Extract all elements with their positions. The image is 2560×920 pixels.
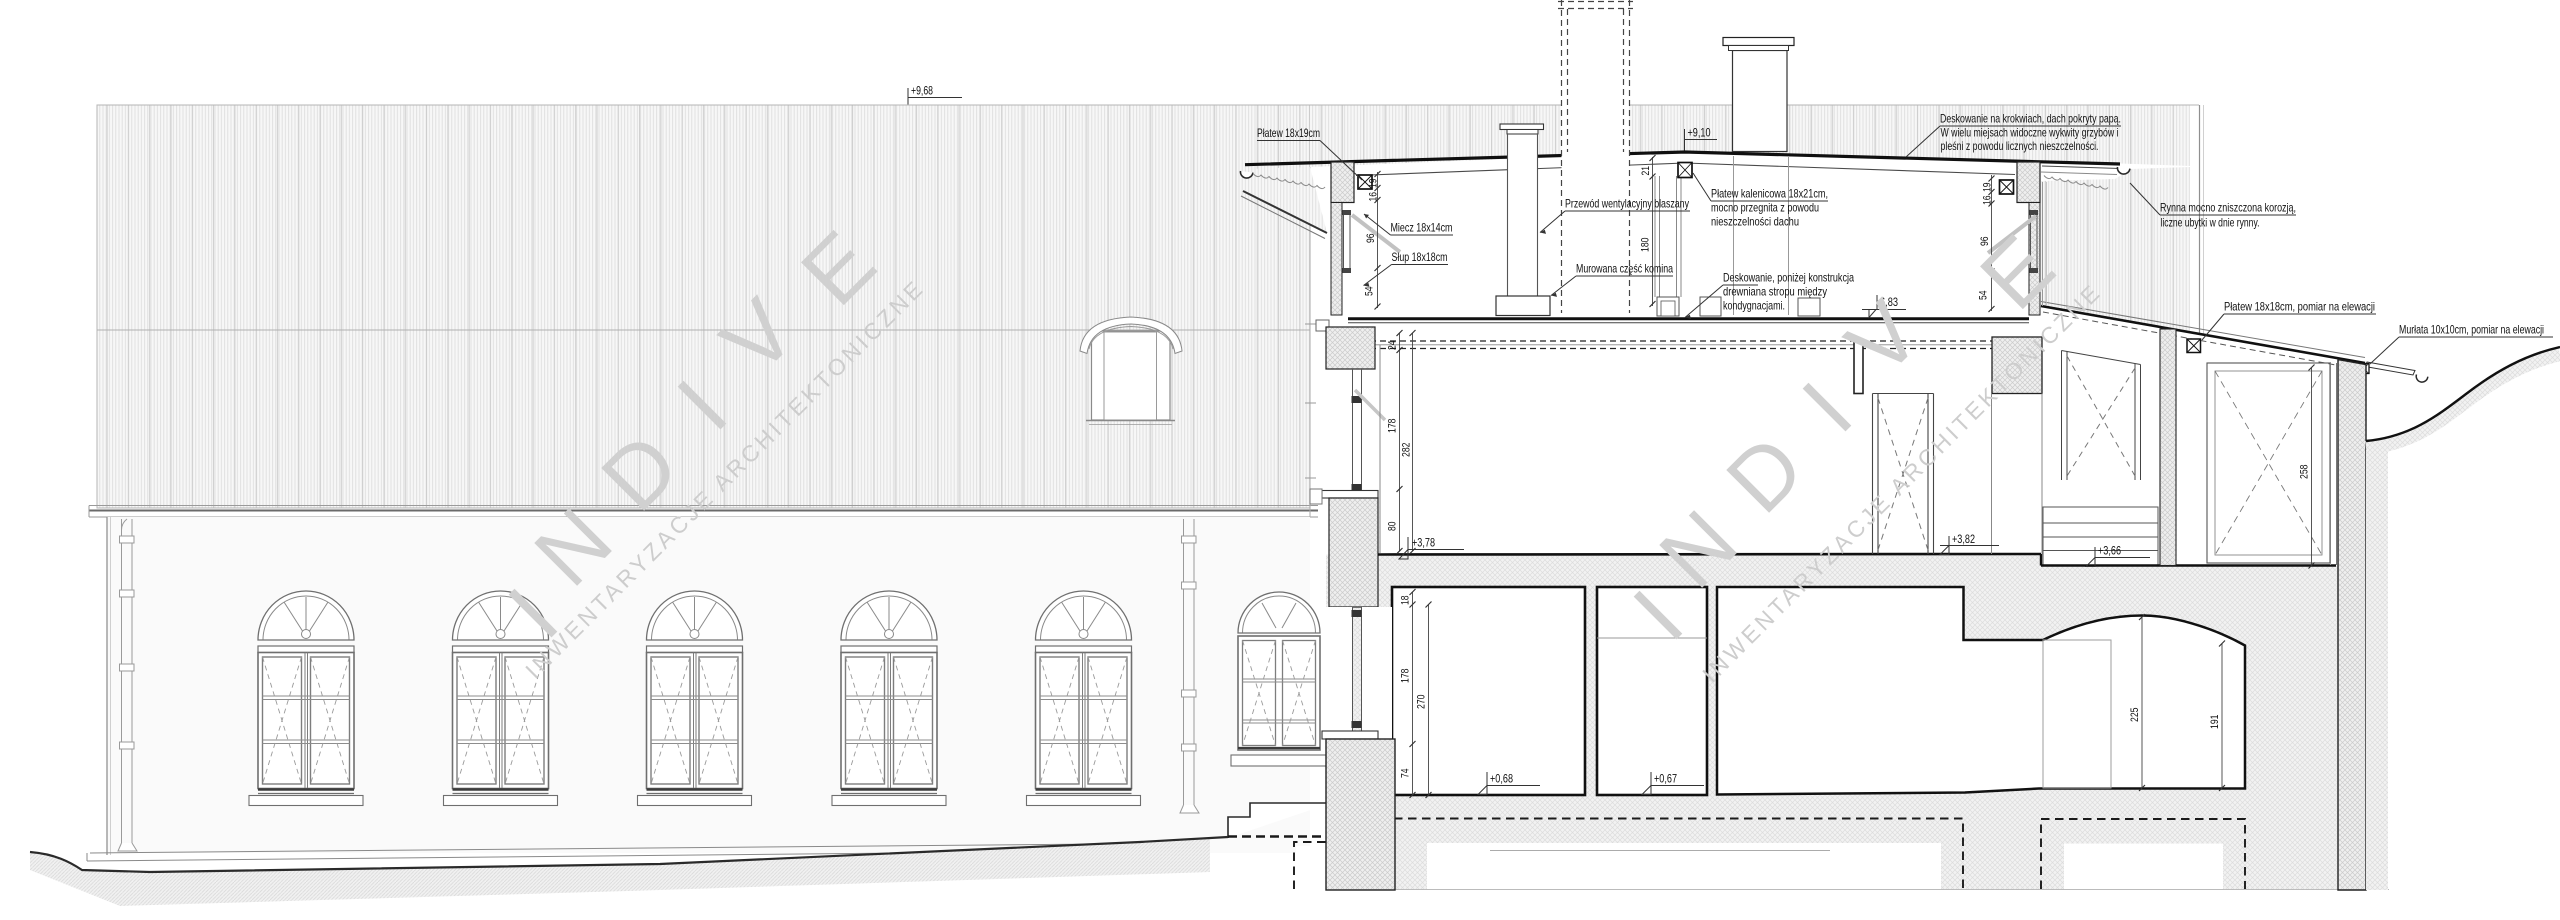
- svg-text:Miecz 18x14cm: Miecz 18x14cm: [1391, 222, 1453, 235]
- svg-text:21: 21: [1640, 166, 1652, 176]
- svg-text:178: 178: [1387, 419, 1399, 434]
- svg-text:Płatew kalenicowa 18x21cm,: Płatew kalenicowa 18x21cm,: [1711, 188, 1828, 201]
- svg-text:74: 74: [1400, 769, 1412, 779]
- svg-text:+9,68: +9,68: [911, 85, 933, 98]
- svg-text:282: 282: [1401, 443, 1413, 458]
- svg-text:Płatew 18x18cm, pomiar na elew: Płatew 18x18cm, pomiar na elewacji: [2224, 301, 2375, 314]
- svg-text:Przewód wentylacyjny blaszany: Przewód wentylacyjny blaszany: [1565, 198, 1689, 211]
- svg-text:Deskowanie, poniżej konstrukcj: Deskowanie, poniżej konstrukcja: [1723, 272, 1854, 285]
- svg-text:+3,78: +3,78: [1412, 537, 1435, 550]
- svg-text:54: 54: [1364, 287, 1376, 297]
- svg-text:19: 19: [1368, 179, 1380, 189]
- svg-text:+0,67: +0,67: [1654, 773, 1677, 786]
- svg-text:+9,10: +9,10: [1688, 127, 1711, 140]
- svg-text:+3,66: +3,66: [2098, 545, 2121, 558]
- svg-text:178: 178: [1400, 669, 1412, 684]
- svg-text:kondygnacjami.: kondygnacjami.: [1723, 300, 1785, 313]
- svg-text:225: 225: [2129, 708, 2141, 723]
- svg-text:Płatew 18x19cm: Płatew 18x19cm: [1257, 127, 1320, 140]
- svg-text:W wielu miejsach widoczne wykw: W wielu miejsach widoczne wykwity grzybó…: [1941, 127, 2119, 140]
- svg-text:54: 54: [1978, 291, 1990, 301]
- svg-text:24: 24: [1387, 341, 1399, 351]
- svg-text:drewniana stropu między: drewniana stropu między: [1723, 286, 1827, 299]
- svg-text:80: 80: [1387, 522, 1399, 532]
- svg-text:16: 16: [1982, 196, 1994, 206]
- svg-text:Murowana część komina: Murowana część komina: [1576, 263, 1673, 276]
- svg-text:liczne ubytki w dnie rynny.: liczne ubytki w dnie rynny.: [2161, 217, 2260, 230]
- svg-text:270: 270: [1416, 695, 1428, 710]
- svg-text:258: 258: [2299, 465, 2311, 480]
- svg-text:Słup 18x18cm: Słup 18x18cm: [1392, 251, 1448, 264]
- svg-text:96: 96: [1365, 234, 1377, 244]
- svg-text:+0,68: +0,68: [1490, 773, 1513, 786]
- svg-text:Deskowanie na krokwiach, dach: Deskowanie na krokwiach, dach pokryty pa…: [1940, 113, 2121, 126]
- svg-text:Rynna mocno zniszczona korozją: Rynna mocno zniszczona korozją,: [2160, 202, 2296, 215]
- svg-text:180: 180: [1640, 238, 1652, 253]
- svg-text:18: 18: [1400, 596, 1412, 606]
- svg-text:mocno przegnita z powodu: mocno przegnita z powodu: [1711, 202, 1819, 215]
- svg-text:191: 191: [2209, 715, 2221, 730]
- svg-text:+3,82: +3,82: [1952, 533, 1975, 546]
- svg-text:Murłata 10x10cm, pomiar na ele: Murłata 10x10cm, pomiar na elewacji: [2399, 324, 2544, 337]
- svg-text:16: 16: [1368, 192, 1380, 202]
- svg-text:nieszczelności dachu: nieszczelności dachu: [1711, 216, 1799, 229]
- svg-text:19: 19: [1982, 183, 1994, 193]
- svg-text:pleśni z powodu licznych niesz: pleśni z powodu licznych nieszczelności.: [1941, 140, 2099, 153]
